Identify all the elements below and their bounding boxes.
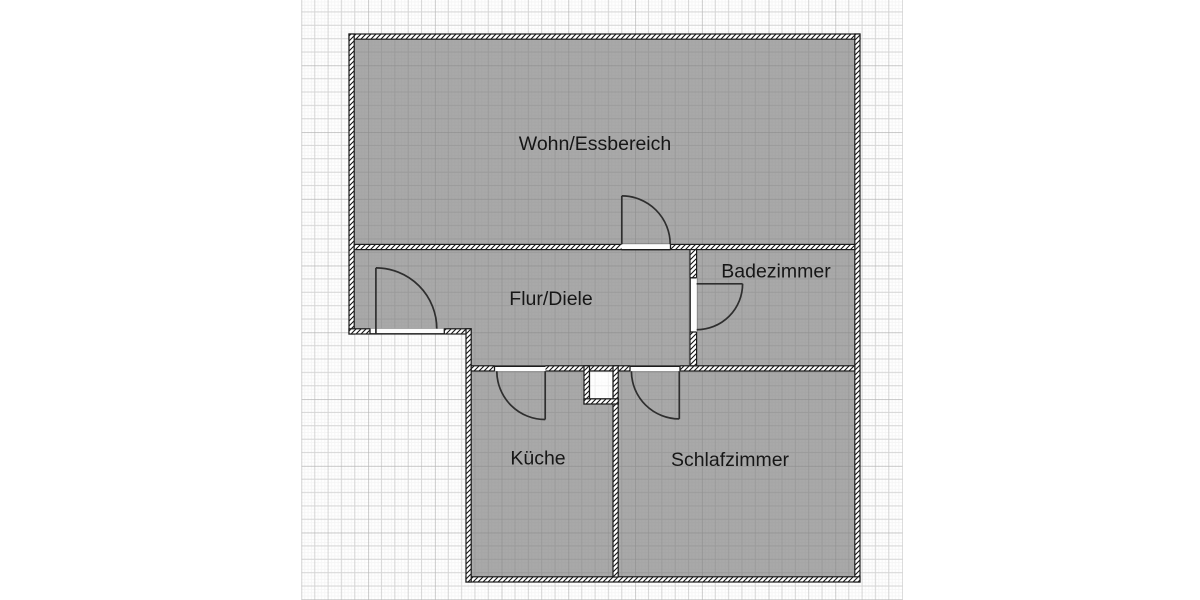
svg-text:Flur/Diele: Flur/Diele: [509, 288, 592, 310]
svg-text:Schlafzimmer: Schlafzimmer: [671, 449, 790, 471]
svg-text:Küche: Küche: [510, 448, 565, 470]
svg-text:Wohn/Essbereich: Wohn/Essbereich: [519, 133, 671, 155]
svg-text:Badezimmer: Badezimmer: [721, 260, 831, 282]
